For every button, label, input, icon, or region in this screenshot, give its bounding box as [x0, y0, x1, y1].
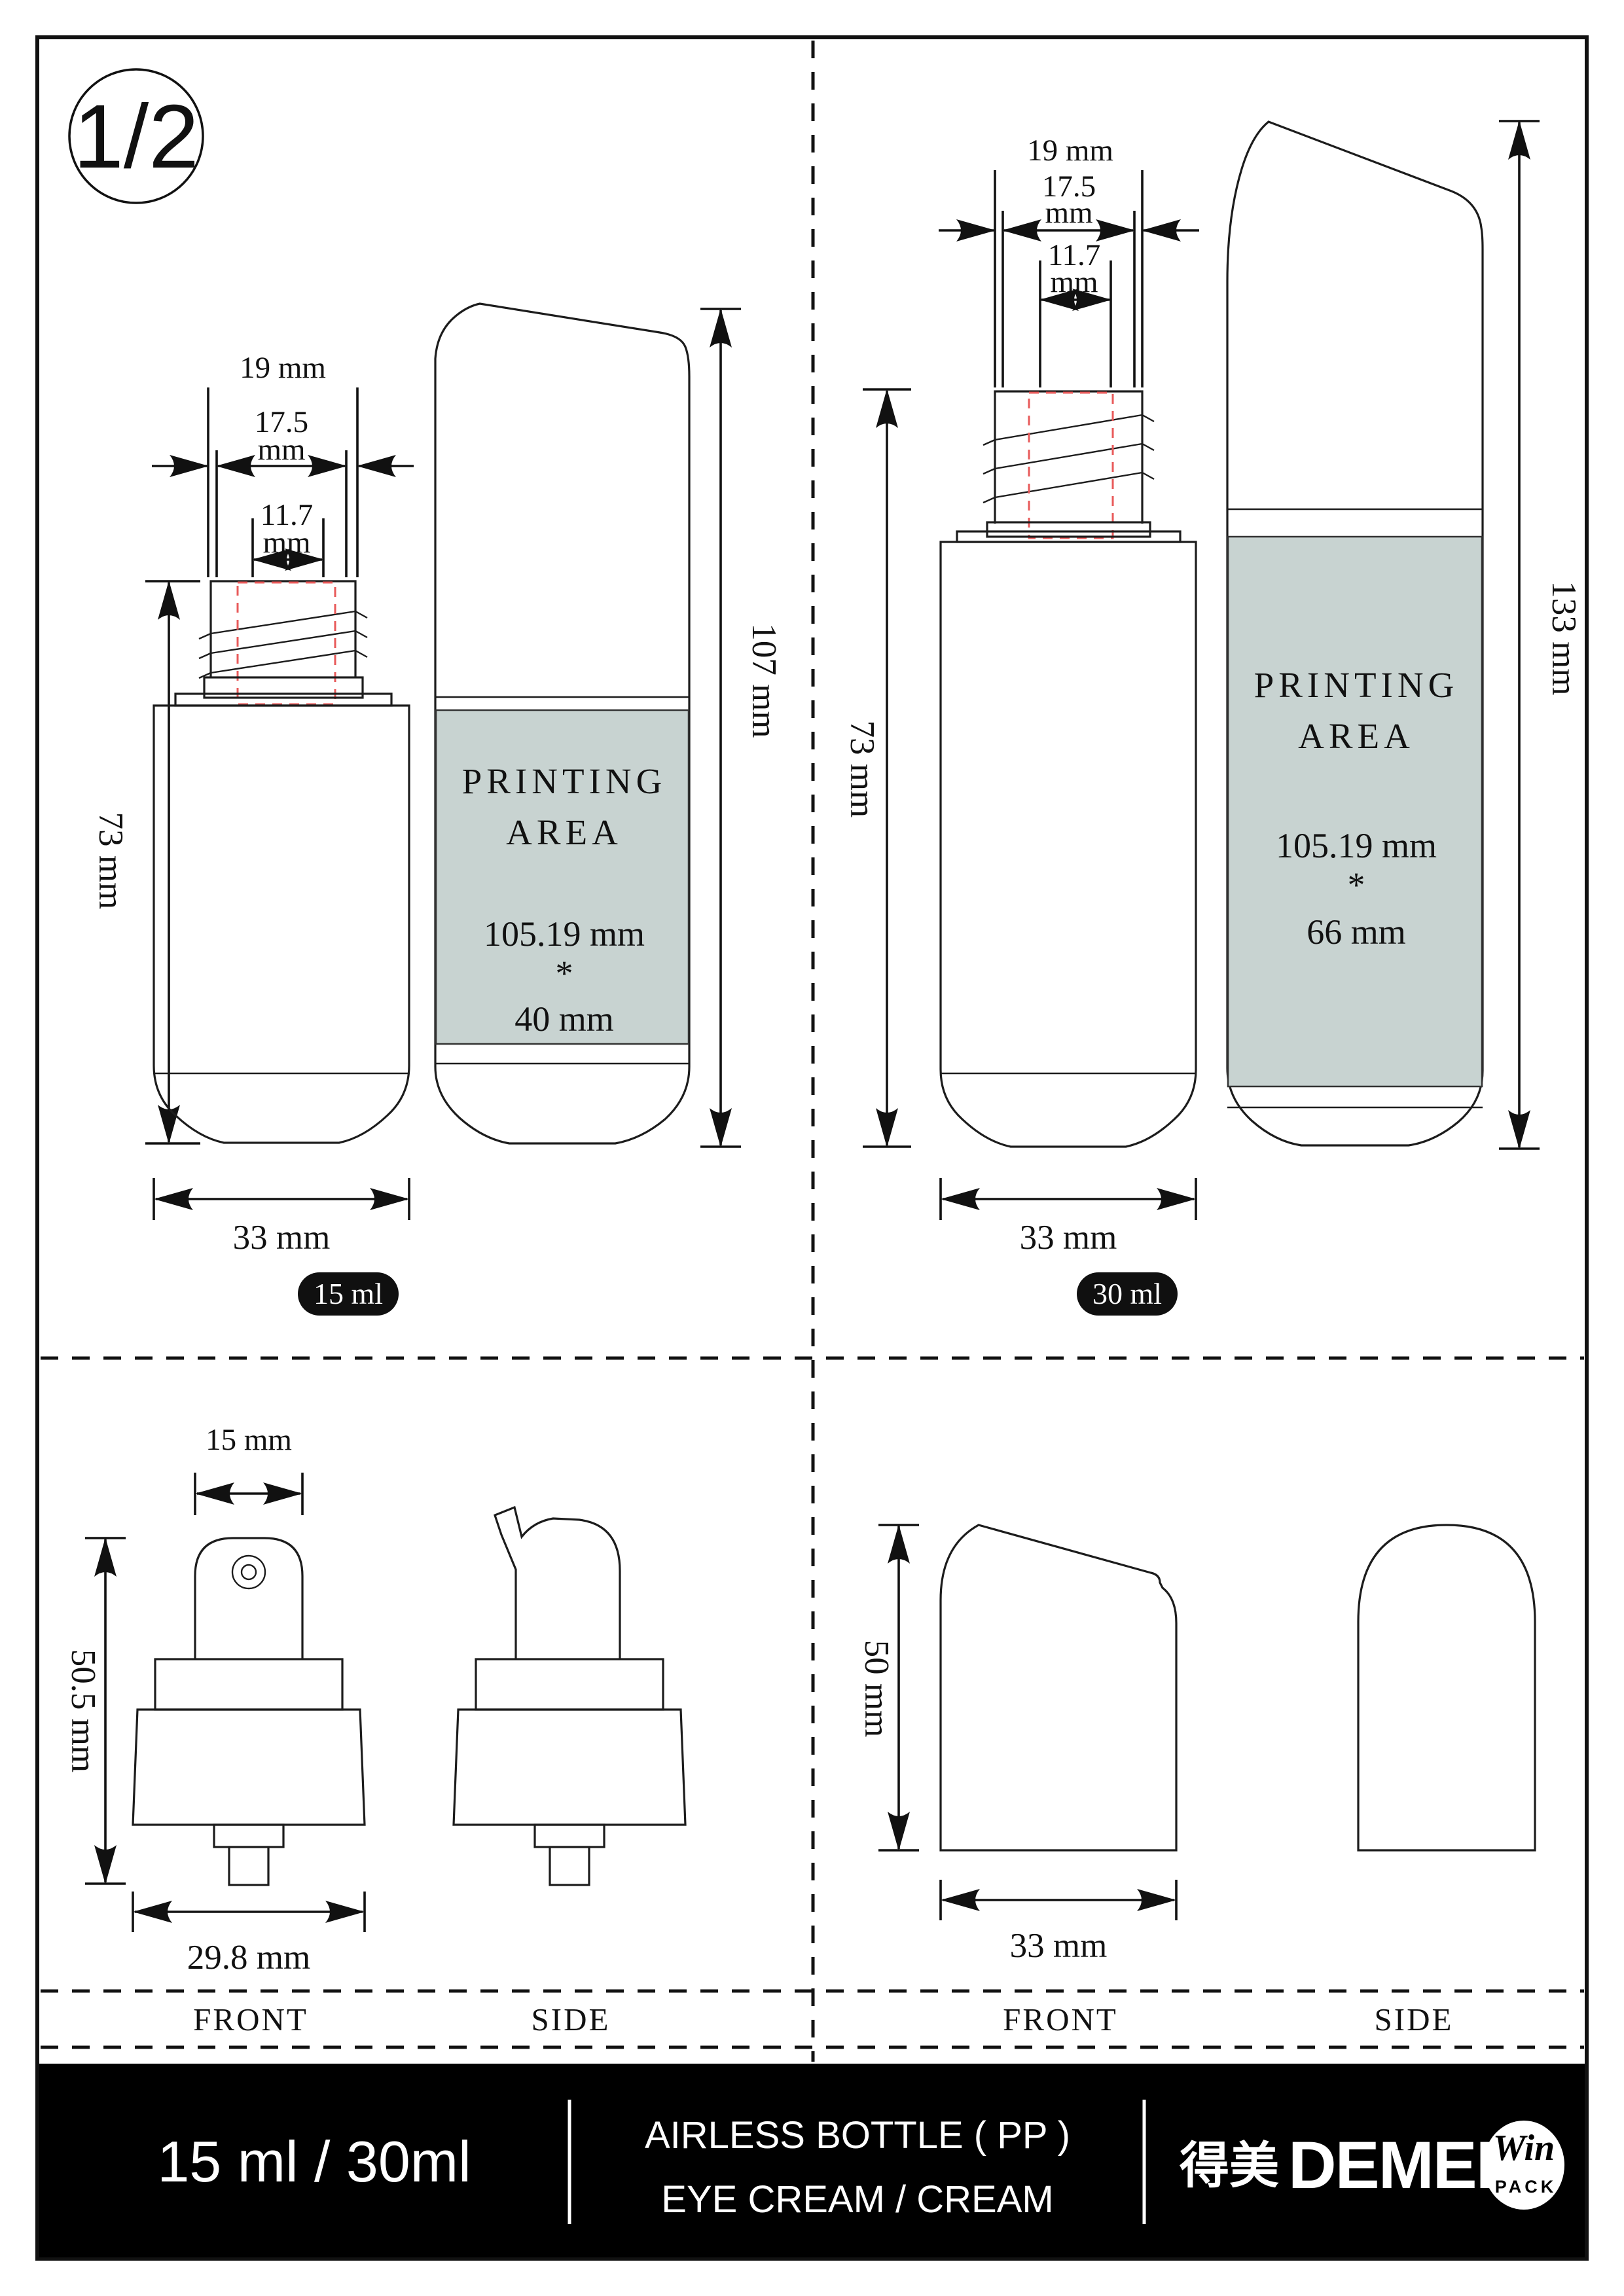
cap-view-labels: FRONT SIDE: [1003, 2001, 1453, 2037]
dim-33mm-label: 33 mm: [1020, 1219, 1117, 1257]
winpack-logo-sub: PACK: [1495, 2177, 1557, 2197]
dim-73mm-label: 73 mm: [92, 812, 130, 910]
dim-17-5-label-l2: mm: [1045, 196, 1092, 230]
neck-inner-red-dashed: [238, 583, 335, 704]
neck-collar-30: [987, 522, 1150, 537]
dim-33mm-label: 33 mm: [1010, 1927, 1108, 1965]
dim-50-5mm-label: 50.5 mm: [64, 1649, 102, 1772]
footer-volumes: 15 ml / 30ml: [157, 2129, 471, 2194]
printing-area-30: [1228, 537, 1482, 1086]
volume-badge-15ml: 15 ml: [298, 1272, 399, 1316]
width-dim-15: 33 mm: [154, 1178, 409, 1257]
printing-width: 105.19 mm: [484, 914, 645, 954]
bottle-body-30: [941, 542, 1196, 1147]
pump-view-labels: FRONT SIDE: [193, 2001, 610, 2037]
brand-demei: DEMEI: [1288, 2128, 1493, 2202]
printing-title-l2: AREA: [506, 812, 623, 852]
bottle-15ml-front-view: 19 mm 17.5 mm 11.7 mm 73 mm: [92, 351, 414, 1316]
pump-collar: [155, 1659, 342, 1710]
printing-height: 40 mm: [514, 999, 614, 1039]
pump-front-drawing: [133, 1538, 365, 1885]
spec-sheet-page: 1/2 19 mm 17.5 mm 11.7 mm: [0, 0, 1624, 2296]
neck-dimensions-30: 19 mm 17.5 mm 11.7 mm: [939, 134, 1199, 387]
dim-50mm-label: 50 mm: [857, 1640, 895, 1738]
printing-title-l2: AREA: [1298, 716, 1415, 756]
cap-front-silhouette: [941, 1525, 1176, 1850]
page-number-badge: 1/2: [69, 69, 203, 203]
cap-front-label: FRONT: [1003, 2001, 1118, 2037]
pump-nozzle-hole-inner: [242, 1565, 256, 1579]
winpack-logo-script: Win: [1493, 2128, 1555, 2168]
badge-label: 15 ml: [314, 1277, 383, 1310]
badge-label: 30 ml: [1092, 1277, 1162, 1310]
pump-stem: [229, 1847, 268, 1885]
printing-title-l1: PRINTING: [462, 761, 667, 801]
printing-height: 66 mm: [1307, 912, 1406, 952]
printing-separator: *: [1348, 865, 1365, 905]
pump-stem: [550, 1847, 589, 1885]
pump-collar: [476, 1659, 663, 1710]
technical-drawing-canvas: 1/2 19 mm 17.5 mm 11.7 mm: [0, 0, 1624, 2296]
pump-front-label: FRONT: [193, 2001, 308, 2037]
width-dim-30: 33 mm: [941, 1178, 1196, 1257]
pump-body: [454, 1710, 685, 1825]
pump-nozzle-hole-outer: [232, 1556, 265, 1588]
neck-dimensions-15: 19 mm 17.5 mm 11.7 mm: [152, 351, 414, 577]
dim-11-7-label-l2: mm: [1050, 265, 1098, 299]
printing-separator: *: [556, 954, 573, 993]
bottle-15ml-side-view: PRINTING AREA 105.19 mm * 40 mm 107 mm: [435, 304, 783, 1147]
pump-step: [535, 1825, 604, 1847]
pump-base-width-dim: 29.8 mm: [133, 1892, 365, 1977]
cap-front-view: 50 mm 33 mm: [857, 1525, 1176, 1965]
page-number: 1/2: [73, 86, 199, 187]
body-height-dim-15: 73 mm: [92, 581, 200, 1143]
dim-73mm-label: 73 mm: [843, 721, 881, 818]
bottle-neck-15: [175, 581, 391, 706]
dim-19mm-label: 19 mm: [1027, 134, 1113, 168]
pump-step: [214, 1825, 283, 1847]
footer-title-block: 15 ml / 30ml AIRLESS BOTTLE ( PP ) EYE C…: [39, 2064, 1585, 2257]
bottle-body-15: [154, 706, 409, 1143]
pump-body: [133, 1710, 365, 1825]
pump-top-width-dim: 15 mm: [195, 1423, 302, 1515]
total-height-dim-15: 107 mm: [700, 309, 783, 1147]
cap-side-label: SIDE: [1375, 2001, 1454, 2037]
cap-side-view: [1358, 1525, 1535, 1850]
volume-badge-30ml: 30 ml: [1077, 1272, 1178, 1316]
dim-19mm-label: 19 mm: [240, 351, 326, 385]
footer-product-line1: AIRLESS BOTTLE ( PP ): [645, 2114, 1070, 2157]
dim-11-7-label-l2: mm: [262, 526, 310, 560]
pump-side-label: SIDE: [532, 2001, 611, 2037]
neck-inner-red-dashed: [1029, 393, 1113, 538]
printing-title-l1: PRINTING: [1254, 665, 1459, 705]
dim-15mm-label: 15 mm: [206, 1423, 292, 1457]
dim-133mm-label: 133 mm: [1545, 581, 1583, 695]
dim-29-8mm-label: 29.8 mm: [187, 1939, 310, 1977]
pump-front-view: 15 mm 50.5 mm 29.8 mm: [64, 1423, 365, 1977]
neck-plate-15: [175, 694, 391, 706]
dim-33mm-label: 33 mm: [233, 1219, 331, 1257]
pump-height-dim: 50.5 mm: [64, 1538, 126, 1884]
printing-width: 105.19 mm: [1276, 826, 1437, 865]
pump-side-view: [454, 1507, 685, 1885]
cap-height-dim: 50 mm: [857, 1525, 919, 1850]
brand-chinese: 得美: [1180, 2138, 1279, 2194]
total-height-dim-30: 133 mm: [1499, 121, 1583, 1149]
bottle-neck-30: [957, 391, 1180, 542]
dim-17-5-label-l2: mm: [257, 433, 305, 467]
cap-width-dim: 33 mm: [941, 1880, 1176, 1965]
dim-107mm-label: 107 mm: [745, 623, 783, 738]
bottle-30ml-front-view: 19 mm 17.5 mm 11.7 mm 73 mm: [843, 134, 1199, 1316]
body-height-dim-30: 73 mm: [843, 389, 911, 1147]
footer-product-line2: EYE CREAM / CREAM: [661, 2178, 1053, 2221]
pump-side-drawing: [454, 1507, 685, 1885]
bottle-30ml-side-view: PRINTING AREA 105.19 mm * 66 mm 133 mm: [1227, 121, 1583, 1149]
printing-area-15: [436, 710, 689, 1044]
cap-side-silhouette: [1358, 1525, 1535, 1850]
